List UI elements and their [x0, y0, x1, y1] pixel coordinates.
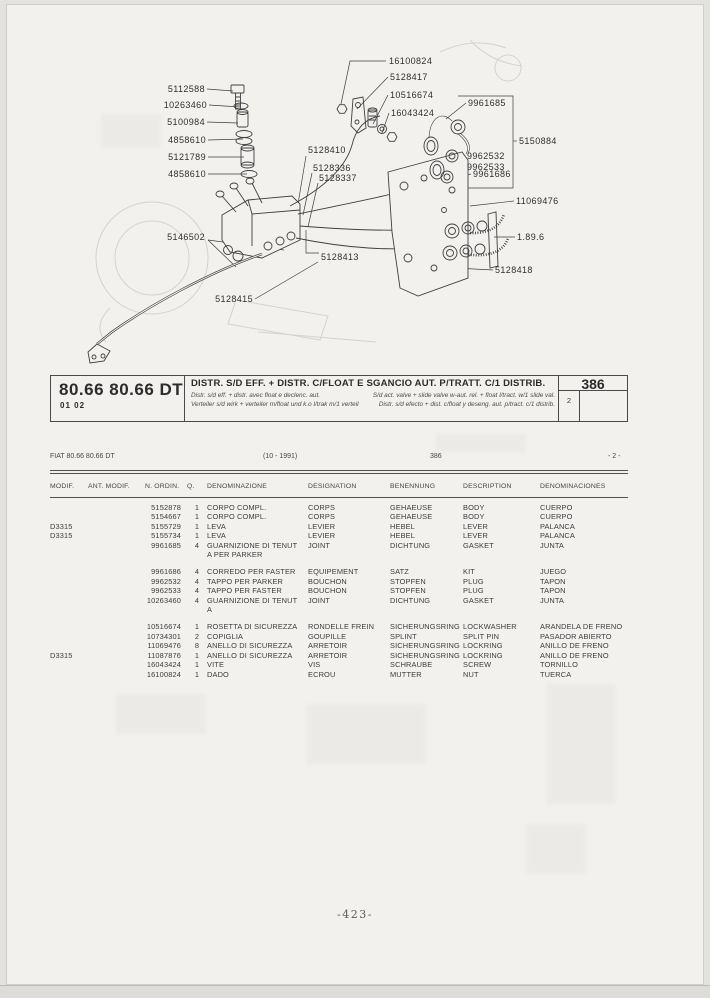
row-group: 105166741ROSETTA DI SICUREZZARONDELLE FR…: [50, 622, 628, 678]
table-cell: 4: [187, 596, 207, 615]
table-cell: 1: [187, 512, 207, 521]
table-cell: LEVER: [463, 531, 540, 540]
part-number-label: 9961685: [468, 98, 506, 108]
table-cell: 10263460: [145, 596, 187, 615]
table-cell: HEBEL: [390, 531, 463, 540]
horizontal-rule: [50, 470, 628, 471]
table-cell: CORREDO PER FASTER: [207, 567, 308, 576]
table-row: 102634604GUARNIZIONE DI TENUTAJOINTDICHT…: [50, 596, 628, 615]
table-cell: 1: [187, 622, 207, 631]
table-cell: SICHERUNGSRING: [390, 651, 463, 660]
meta-line: FIAT 80.66 80.66 DT (10 - 1991) 386 - 2 …: [0, 453, 710, 465]
table-cell: 10734301: [145, 632, 187, 641]
part-number-label: 5128415: [215, 294, 253, 304]
part-number-label: 1.89.6: [517, 232, 544, 242]
table-cell: 2: [187, 632, 207, 641]
scan-edge-artifact: [0, 985, 710, 998]
table-row: 99625334TAPPO PER FASTERBOUCHONSTOPFENPL…: [50, 586, 628, 595]
part-number-label: 9962532: [467, 151, 505, 161]
part-number-label: 5121789: [168, 152, 206, 162]
table-cell: SATZ: [390, 567, 463, 576]
scanned-catalog-page: { "header": { "model": "80.66 80.66 DT",…: [0, 0, 710, 997]
table-cell: CORPS: [308, 503, 390, 512]
subtitle-right: Distr. s/d efecto + dist. c/float y dese…: [379, 401, 555, 408]
table-row: 99625324TAPPO PER PARKERBOUCHONSTOPFENPL…: [50, 577, 628, 586]
table-cell: PLUG: [463, 586, 540, 595]
catalog-header: 80.66 80.66 DT 01 02 DISTR. S/D EFF. + D…: [50, 375, 628, 422]
table-cell: GUARNIZIONE DI TENUTA: [207, 596, 308, 615]
subtitle-left: Verteiler s/d wirk + verteiler m/float u…: [191, 401, 359, 408]
part-number-label: 9961686: [473, 169, 511, 179]
part-number-label: 10263460: [164, 100, 207, 110]
part-number-label: 5128410: [308, 145, 346, 155]
part-number-label: 5128336: [313, 163, 351, 173]
table-cell: 1: [187, 531, 207, 540]
table-row: 107343012COPIGLIAGOUPILLESPLINTSPLIT PIN…: [50, 632, 628, 641]
subtitle-line: Distr. s/d eff. + distr. avec float e de…: [191, 392, 555, 399]
table-cell: 9962532: [145, 577, 187, 586]
table-cell: 1: [187, 522, 207, 531]
part-number-label: 16043424: [391, 108, 434, 118]
table-cell: JUEGO: [540, 567, 628, 576]
table-cell: [50, 541, 88, 560]
table-cell: [88, 586, 145, 595]
table-cell: ANELLO DI SICUREZZA: [207, 651, 308, 660]
table-cell: ANELLO DI SICUREZZA: [207, 641, 308, 650]
table-row: 99616864CORREDO PER FASTEREQUIPEMENTSATZ…: [50, 567, 628, 576]
column-header: DESIGNATION: [308, 483, 390, 490]
table-cell: SCREW: [463, 660, 540, 669]
table-cell: [88, 632, 145, 641]
table-cell: CUERPO: [540, 503, 628, 512]
column-header: DENOMINAZIONE: [207, 483, 308, 490]
table-cell: STOPFEN: [390, 586, 463, 595]
table-cell: [88, 641, 145, 650]
table-cell: CUERPO: [540, 512, 628, 521]
parts-table-header: MODIF.ANT. MODIF.N. ORDIN.Q.DENOMINAZION…: [50, 483, 628, 490]
table-cell: EQUIPEMENT: [308, 567, 390, 576]
table-cell: 1: [187, 651, 207, 660]
table-cell: [88, 512, 145, 521]
section-code: 01 02: [60, 401, 85, 410]
table-cell: CORPO COMPL.: [207, 512, 308, 521]
table-cell: TUERCA: [540, 670, 628, 679]
column-header: DENOMINACIONES: [540, 483, 628, 490]
table-cell: [88, 503, 145, 512]
table-cell: ANILLO DE FRENO: [540, 651, 628, 660]
model-cell: 80.66 80.66 DT 01 02: [51, 376, 184, 421]
column-header: N. ORDIN.: [145, 483, 187, 490]
table-cell: DADO: [207, 670, 308, 679]
meta-model: FIAT 80.66 80.66 DT: [50, 453, 115, 460]
sheet-number: 2: [559, 396, 579, 405]
table-cell: LEVIER: [308, 531, 390, 540]
table-cell: [88, 660, 145, 669]
row-group: 51528781CORPO COMPL.CORPSGEHAEUSEBODYCUE…: [50, 503, 628, 559]
table-cell: [88, 577, 145, 586]
table-cell: BOUCHON: [308, 586, 390, 595]
table-cell: HEBEL: [390, 522, 463, 531]
table-cell: ECROU: [308, 670, 390, 679]
table-cell: PALANCA: [540, 522, 628, 531]
table-cell: GASKET: [463, 596, 540, 615]
parts-table-body: 51528781CORPO COMPL.CORPSGEHAEUSEBODYCUE…: [50, 503, 628, 687]
table-cell: VIS: [308, 660, 390, 669]
table-cell: ARRETOIR: [308, 641, 390, 650]
bleed-through-artifact: [436, 434, 526, 452]
table-cell: CORPO COMPL.: [207, 503, 308, 512]
table-cell: D3315: [50, 651, 88, 660]
table-cell: [50, 660, 88, 669]
table-row: 160434241VITEVISSCHRAUBESCREWTORNILLO: [50, 660, 628, 669]
part-number-label: 16100824: [389, 56, 432, 66]
title-cell: DISTR. S/D EFF. + DISTR. C/FLOAT E SGANC…: [191, 378, 555, 419]
section-title: DISTR. S/D EFF. + DISTR. C/FLOAT E SGANC…: [191, 378, 555, 389]
table-row: D331551557341LEVALEVIERHEBELLEVERPALANCA: [50, 531, 628, 540]
subtitle-right: S/d act. valve + slide valve w-aut. rel.…: [373, 392, 555, 399]
table-cell: 5155734: [145, 531, 187, 540]
table-cell: LOCKRING: [463, 651, 540, 660]
table-cell: TORNILLO: [540, 660, 628, 669]
table-cell: [50, 577, 88, 586]
part-number-label: 5150884: [519, 136, 557, 146]
bleed-through-artifact: [526, 824, 586, 874]
bleed-through-artifact: [546, 684, 616, 804]
table-cell: 16043424: [145, 660, 187, 669]
part-number-label: 5128418: [495, 265, 533, 275]
bleed-through-artifact: [116, 694, 206, 734]
divider: [184, 376, 185, 421]
table-cell: LEVA: [207, 531, 308, 540]
table-cell: JUNTA: [540, 596, 628, 615]
table-cell: [50, 670, 88, 679]
table-cell: JUNTA: [540, 541, 628, 560]
table-cell: DICHTUNG: [390, 596, 463, 615]
table-cell: [88, 567, 145, 576]
table-cell: TAPON: [540, 586, 628, 595]
table-cell: LOCKRING: [463, 641, 540, 650]
table-cell: 9962533: [145, 586, 187, 595]
table-cell: ARRETOIR: [308, 651, 390, 660]
row-group: 99616864CORREDO PER FASTEREQUIPEMENTSATZ…: [50, 567, 628, 614]
table-cell: BODY: [463, 512, 540, 521]
table-cell: SICHERUNGSRING: [390, 641, 463, 650]
table-cell: 1: [187, 503, 207, 512]
table-cell: 11069476: [145, 641, 187, 650]
table-row: 51546671CORPO COMPL.CORPSGEHAEUSEBODYCUE…: [50, 512, 628, 521]
meta-table-number: 386: [430, 453, 442, 460]
table-cell: LEVA: [207, 522, 308, 531]
table-cell: PASADOR ABIERTO: [540, 632, 628, 641]
table-cell: GEHAEUSE: [390, 512, 463, 521]
table-cell: NUT: [463, 670, 540, 679]
exploded-parts-diagram: [0, 0, 710, 372]
part-number-label: 5128413: [321, 252, 359, 262]
horizontal-rule: [50, 473, 628, 474]
table-cell: 8: [187, 641, 207, 650]
table-cell: 5154667: [145, 512, 187, 521]
table-cell: 9961686: [145, 567, 187, 576]
table-cell: COPIGLIA: [207, 632, 308, 641]
bleed-through-artifact: [306, 704, 426, 764]
column-header: Q.: [187, 483, 207, 490]
meta-sheet-number: - 2 -: [608, 453, 620, 460]
table-cell: LEVER: [463, 522, 540, 531]
table-cell: TAPON: [540, 577, 628, 586]
page-number: -423-: [275, 908, 435, 921]
table-cell: STOPFEN: [390, 577, 463, 586]
table-cell: JOINT: [308, 541, 390, 560]
meta-date-range: (10 - 1991): [263, 453, 297, 460]
table-cell: [50, 586, 88, 595]
page-ref-cell: 386 2: [559, 376, 627, 421]
subtitle-left: Distr. s/d eff. + distr. avec float e de…: [191, 392, 320, 399]
part-number-label: 4858610: [168, 169, 206, 179]
table-cell: ROSETTA DI SICUREZZA: [207, 622, 308, 631]
column-header: MODIF.: [50, 483, 88, 490]
table-cell: GOUPILLE: [308, 632, 390, 641]
table-cell: SPLINT: [390, 632, 463, 641]
part-number-label: 5100984: [167, 117, 205, 127]
table-cell: 9961685: [145, 541, 187, 560]
table-cell: CORPS: [308, 512, 390, 521]
table-cell: PLUG: [463, 577, 540, 586]
part-number-label: 5128417: [390, 72, 428, 82]
table-cell: 10516674: [145, 622, 187, 631]
table-cell: [88, 596, 145, 615]
part-number-label: 10516674: [390, 90, 433, 100]
table-cell: [88, 670, 145, 679]
table-cell: [50, 512, 88, 521]
table-cell: SICHERUNGSRING: [390, 622, 463, 631]
table-row: D331551557291LEVALEVIERHEBELLEVERPALANCA: [50, 522, 628, 531]
table-cell: 4: [187, 577, 207, 586]
table-row: 51528781CORPO COMPL.CORPSGEHAEUSEBODYCUE…: [50, 503, 628, 512]
table-cell: [88, 651, 145, 660]
table-cell: [50, 622, 88, 631]
part-number-label: 4858610: [168, 135, 206, 145]
table-cell: PALANCA: [540, 531, 628, 540]
table-cell: RONDELLE FREIN: [308, 622, 390, 631]
table-cell: 11087876: [145, 651, 187, 660]
table-cell: VITE: [207, 660, 308, 669]
table-cell: 16100824: [145, 670, 187, 679]
table-cell: GEHAEUSE: [390, 503, 463, 512]
table-cell: [88, 522, 145, 531]
table-cell: GASKET: [463, 541, 540, 560]
divider: [559, 390, 627, 391]
table-cell: MUTTER: [390, 670, 463, 679]
table-cell: D3315: [50, 531, 88, 540]
subtitle-line: Verteiler s/d wirk + verteiler m/float u…: [191, 401, 555, 408]
table-row: 105166741ROSETTA DI SICUREZZARONDELLE FR…: [50, 622, 628, 631]
table-cell: [50, 567, 88, 576]
table-cell: 5155729: [145, 522, 187, 531]
table-cell: [50, 503, 88, 512]
model-number: 80.66 80.66 DT: [59, 380, 183, 400]
table-row: D3315110878761ANELLO DI SICUREZZAARRETOI…: [50, 651, 628, 660]
horizontal-rule: [50, 497, 628, 498]
table-cell: DICHTUNG: [390, 541, 463, 560]
table-cell: [50, 641, 88, 650]
table-cell: SPLIT PIN: [463, 632, 540, 641]
part-number-label: 5146502: [167, 232, 205, 242]
table-cell: 1: [187, 660, 207, 669]
column-header: ANT. MODIF.: [88, 483, 145, 490]
table-cell: 4: [187, 541, 207, 560]
table-cell: GUARNIZIONE DI TENUTA PER PARKER: [207, 541, 308, 560]
table-cell: D3315: [50, 522, 88, 531]
part-number-label: 5128337: [319, 173, 357, 183]
table-cell: TAPPO PER FASTER: [207, 586, 308, 595]
table-cell: 4: [187, 586, 207, 595]
column-header: BENENNUNG: [390, 483, 463, 490]
part-number-label: 5112588: [168, 84, 205, 94]
part-number-label: 11069476: [516, 196, 559, 206]
table-cell: BODY: [463, 503, 540, 512]
table-cell: 1: [187, 670, 207, 679]
column-header: DESCRIPTION: [463, 483, 540, 490]
table-row: 110694768ANELLO DI SICUREZZAARRETOIRSICH…: [50, 641, 628, 650]
table-cell: ARANDELA DE FRENO: [540, 622, 628, 631]
table-cell: [50, 596, 88, 615]
table-cell: 4: [187, 567, 207, 576]
table-cell: [50, 632, 88, 641]
table-cell: BOUCHON: [308, 577, 390, 586]
table-cell: ANILLO DE FRENO: [540, 641, 628, 650]
table-cell: [88, 531, 145, 540]
table-cell: [88, 622, 145, 631]
table-row: 99616854GUARNIZIONE DI TENUTA PER PARKER…: [50, 541, 628, 560]
section-subtitles: Distr. s/d eff. + distr. avec float e de…: [191, 392, 555, 409]
table-cell: 5152878: [145, 503, 187, 512]
table-cell: LOCKWASHER: [463, 622, 540, 631]
table-cell: JOINT: [308, 596, 390, 615]
divider: [579, 390, 580, 421]
table-cell: KIT: [463, 567, 540, 576]
table-cell: TAPPO PER PARKER: [207, 577, 308, 586]
table-cell: LEVIER: [308, 522, 390, 531]
table-row: 161008241DADOECROUMUTTERNUTTUERCA: [50, 670, 628, 679]
table-cell: SCHRAUBE: [390, 660, 463, 669]
table-cell: [88, 541, 145, 560]
